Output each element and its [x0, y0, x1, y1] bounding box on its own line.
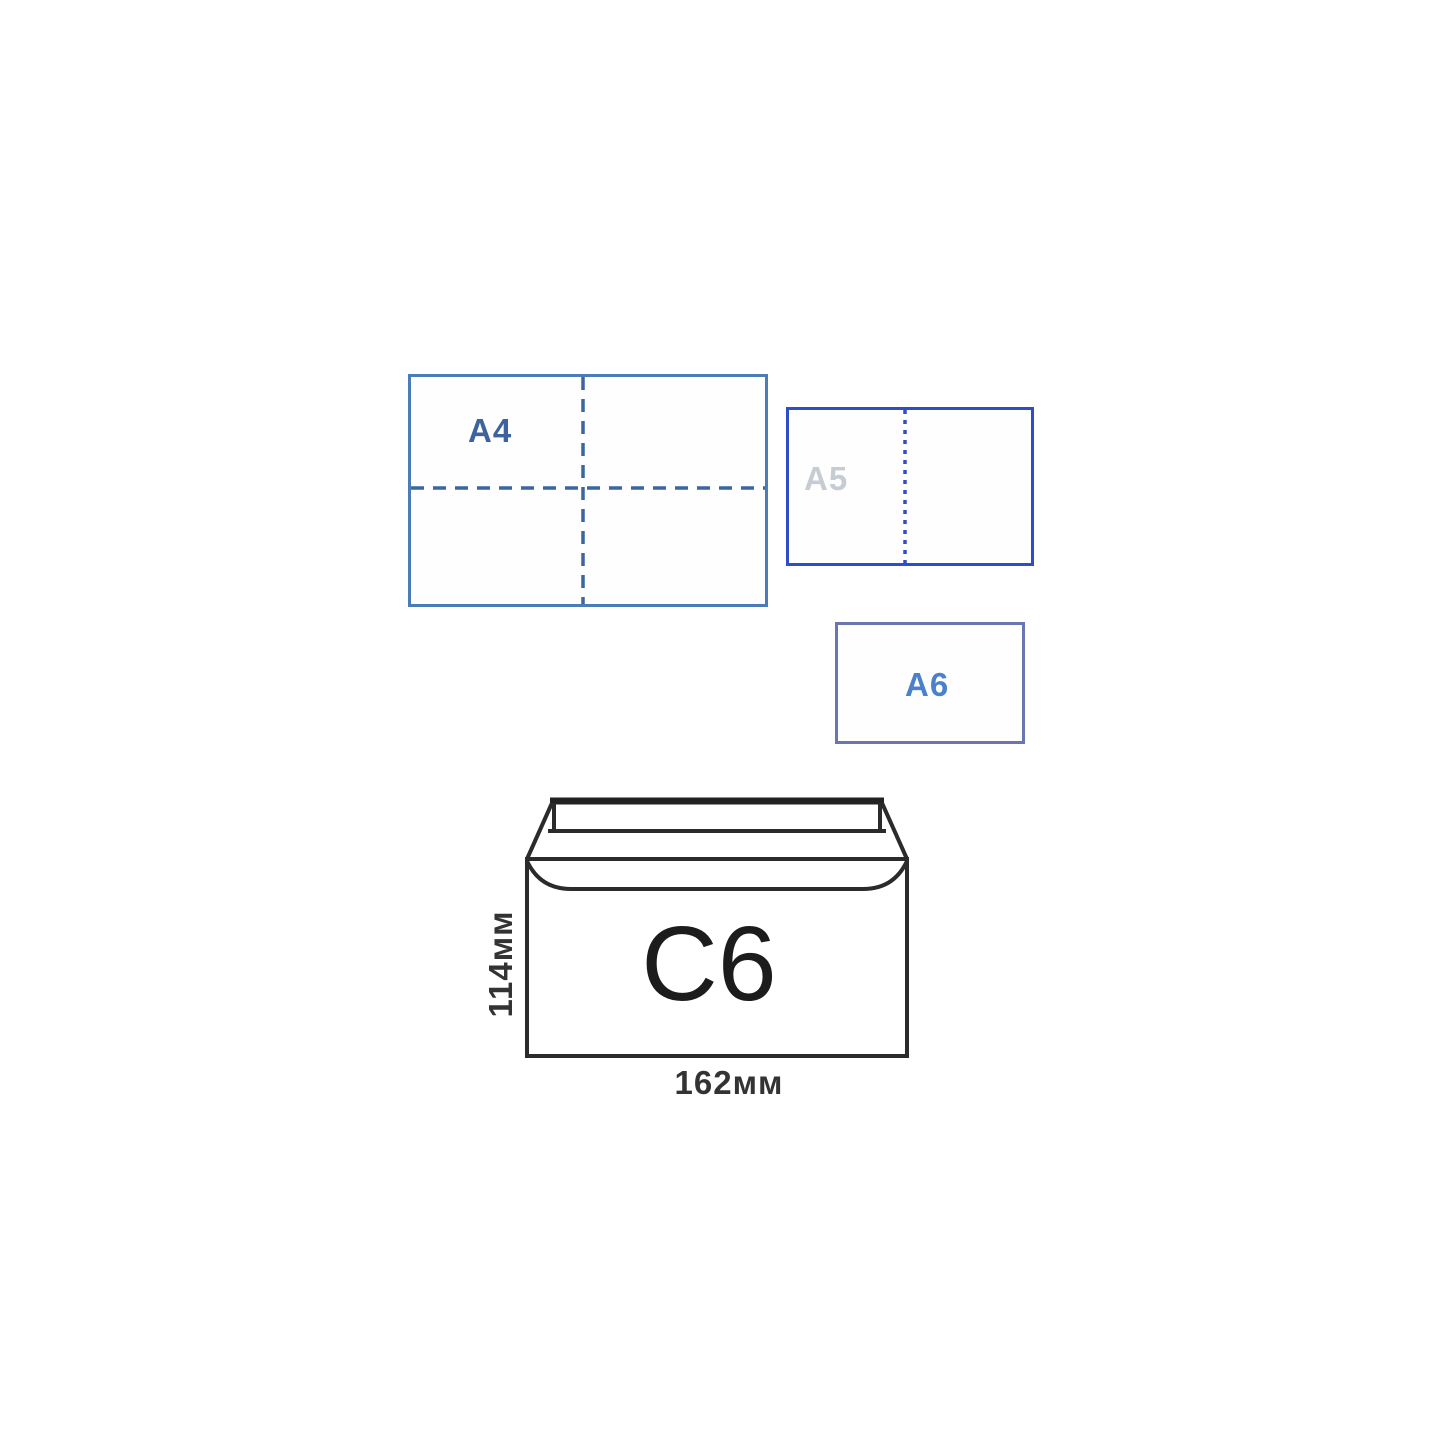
- a4-fold-lines: [411, 377, 765, 604]
- a6-sheet: A6: [835, 622, 1025, 744]
- a5-sheet: A5: [786, 407, 1034, 566]
- envelope-width-dimension: 162мм: [639, 1064, 819, 1102]
- a4-sheet: A4: [408, 374, 768, 607]
- a4-label: A4: [468, 414, 512, 447]
- a6-label: A6: [905, 668, 949, 701]
- envelope-height-dimension: 114мм: [484, 902, 518, 1026]
- envelope-size-label: C6: [519, 905, 899, 1023]
- paper-size-diagram: A4 A5 A6 C6 114мм 162мм: [0, 0, 1445, 1445]
- a5-label: A5: [804, 462, 848, 495]
